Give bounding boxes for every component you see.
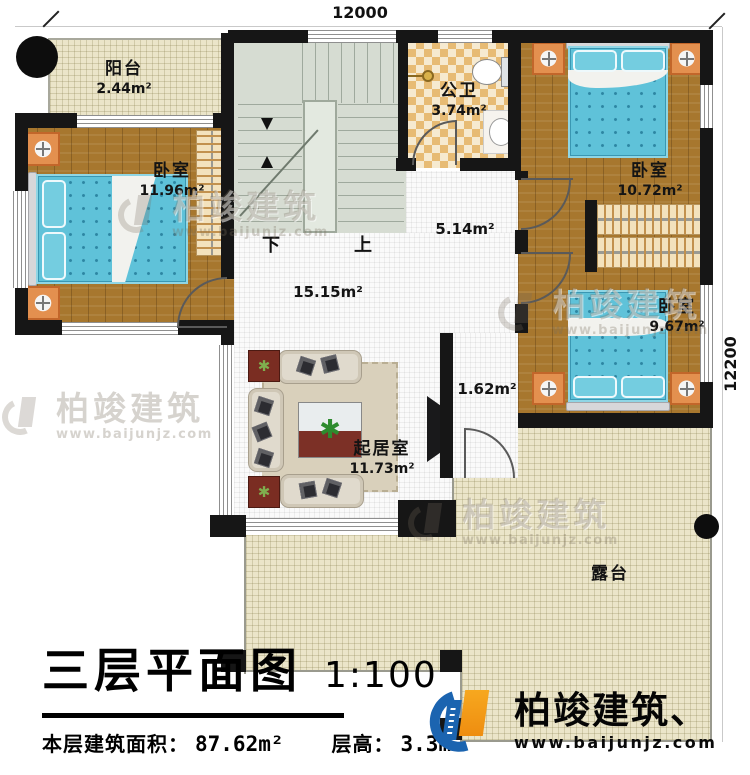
wall bbox=[585, 200, 597, 272]
side-table: ✱ bbox=[248, 350, 280, 382]
wall bbox=[15, 320, 62, 335]
wall bbox=[700, 30, 713, 85]
sofa-cushion bbox=[299, 481, 318, 500]
window bbox=[13, 191, 28, 288]
room-label-bedroom-top-right: 卧室 10.72m² bbox=[600, 160, 700, 200]
nightstand bbox=[670, 42, 703, 75]
stair-direction-arrow bbox=[261, 118, 273, 130]
area-label-hallway: 5.14m² bbox=[425, 220, 505, 238]
brand-name: 柏竣建筑、 bbox=[514, 690, 717, 733]
brand-url: www.baijunjz.com bbox=[514, 733, 717, 752]
drain-pipe-dot bbox=[694, 514, 719, 539]
wall bbox=[508, 30, 521, 171]
plant-icon: ✱ bbox=[258, 485, 271, 500]
floor-info-row: 本层建筑面积： 87.62m² 层高： 3.3m bbox=[42, 728, 451, 757]
room-label-bedroom-mid-right: 卧室 9.67m² bbox=[627, 296, 727, 336]
bed-headboard bbox=[566, 402, 670, 411]
terrace-column bbox=[440, 650, 462, 672]
dim-tick-top-left bbox=[43, 11, 60, 28]
nightstand bbox=[532, 42, 565, 75]
wardrobe bbox=[597, 237, 701, 268]
bed-pillow bbox=[621, 376, 665, 398]
wall bbox=[221, 327, 234, 345]
nightstand bbox=[26, 132, 60, 166]
stair-flight-top bbox=[302, 37, 404, 103]
dimension-top: 12000 bbox=[320, 3, 400, 22]
wall bbox=[515, 230, 528, 254]
nightstand bbox=[26, 286, 60, 320]
room-label-terrace: 露台 bbox=[580, 563, 640, 585]
brand-logo: 柏竣建筑、 www.baijunjz.com bbox=[428, 682, 717, 760]
wall bbox=[221, 33, 234, 279]
bed-pillow bbox=[621, 50, 665, 72]
floor-area-value: 87.62m² bbox=[195, 732, 284, 756]
wall bbox=[440, 333, 453, 478]
nightstand bbox=[670, 372, 703, 405]
roof-edge-line-top bbox=[15, 26, 722, 27]
wardrobe bbox=[597, 204, 701, 235]
window bbox=[308, 30, 396, 43]
window bbox=[219, 345, 233, 515]
door-leaf bbox=[464, 428, 466, 478]
wall bbox=[700, 128, 713, 285]
window bbox=[62, 322, 178, 335]
door-leaf bbox=[521, 252, 573, 254]
stair-up-label: 上 bbox=[348, 231, 378, 257]
window bbox=[700, 85, 713, 128]
window bbox=[246, 518, 398, 533]
drain-pipe-dot bbox=[16, 36, 58, 78]
floor-area-label: 本层建筑面积： bbox=[42, 728, 189, 757]
plan-title-row: 三层平面图 1:100 bbox=[42, 648, 438, 695]
watermark-building-icon bbox=[2, 393, 46, 441]
wall bbox=[398, 500, 456, 537]
room-label-bathroom: 公卫 3.74m² bbox=[409, 80, 509, 120]
sofa-top bbox=[278, 350, 362, 384]
title-underline bbox=[42, 713, 344, 718]
watermark: 柏竣建筑 www.baijunjz.com bbox=[2, 392, 213, 442]
stair-direction-arrow bbox=[261, 156, 273, 168]
page-title: 三层平面图 bbox=[42, 648, 302, 695]
bed-pillow bbox=[42, 180, 66, 228]
plant-icon: ✱ bbox=[258, 359, 271, 374]
area-label-open-area: 15.15m² bbox=[288, 283, 368, 301]
brand-logo-icon bbox=[428, 682, 504, 760]
stair-flight-right bbox=[338, 104, 404, 233]
bed-pillow bbox=[573, 376, 617, 398]
room-label-living-room: 起居室 11.73m² bbox=[332, 438, 432, 478]
room-label-balcony: 阳台 2.44m² bbox=[74, 58, 174, 98]
wall bbox=[15, 113, 28, 191]
wall bbox=[210, 515, 246, 537]
stair-landing bbox=[303, 100, 337, 233]
plan-scale: 1:100 bbox=[324, 658, 438, 694]
window bbox=[438, 30, 492, 43]
wall bbox=[515, 304, 528, 333]
bed-pillow bbox=[573, 50, 617, 72]
door-leaf bbox=[177, 326, 227, 328]
bed-pillow bbox=[42, 232, 66, 280]
wall bbox=[398, 33, 408, 171]
door-leaf bbox=[521, 178, 573, 180]
room-label-bedroom-left: 卧室 11.96m² bbox=[122, 160, 222, 200]
stair-down-label: 下 bbox=[256, 231, 286, 257]
floor-height-label: 层高： bbox=[332, 728, 395, 757]
door-leaf bbox=[455, 120, 457, 165]
wall bbox=[492, 30, 713, 43]
wall bbox=[518, 413, 713, 428]
nightstand bbox=[532, 372, 565, 405]
window bbox=[77, 115, 213, 128]
area-label-corridor: 1.62m² bbox=[447, 380, 527, 398]
side-table: ✱ bbox=[248, 476, 280, 508]
wall bbox=[228, 30, 308, 43]
